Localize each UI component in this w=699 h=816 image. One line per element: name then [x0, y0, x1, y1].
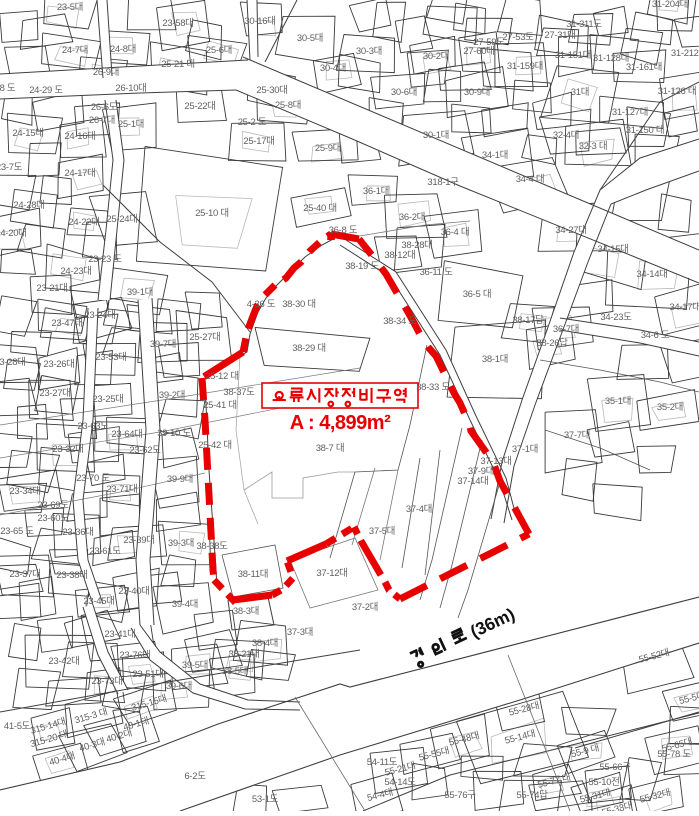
svg-text:25-41 대: 25-41 대: [203, 400, 237, 411]
svg-text:25-17대: 25-17대: [243, 136, 274, 147]
svg-text:23-53대: 23-53대: [95, 352, 126, 363]
svg-text:24-7대: 24-7대: [62, 45, 88, 56]
svg-text:31대: 31대: [571, 87, 589, 98]
svg-text:38-12대: 38-12대: [384, 250, 415, 261]
svg-text:30-2대: 30-2대: [423, 51, 449, 62]
svg-text:26-6도: 26-6도: [91, 102, 118, 113]
svg-text:34-17대: 34-17대: [669, 302, 699, 313]
svg-text:30-3대: 30-3대: [356, 46, 382, 57]
svg-text:23-32대: 23-32대: [52, 444, 83, 455]
svg-text:23-26대: 23-26대: [43, 359, 74, 370]
svg-text:23-37대: 23-37대: [9, 569, 40, 580]
svg-text:23-41대: 23-41대: [104, 629, 135, 640]
svg-text:37-2대: 37-2대: [352, 602, 378, 613]
svg-text:23-21대: 23-21대: [36, 283, 67, 294]
svg-text:39-10 도: 39-10 도: [157, 428, 191, 439]
svg-text:31-159대: 31-159대: [507, 61, 543, 72]
svg-text:55-78 도: 55-78 도: [657, 749, 691, 760]
svg-text:23-40대: 23-40대: [118, 586, 149, 597]
svg-text:25-8대: 25-8대: [275, 100, 301, 111]
svg-text:37-7대: 37-7대: [564, 430, 590, 441]
svg-text:24-16대: 24-16대: [64, 131, 95, 142]
svg-text:37-12대: 37-12대: [316, 568, 347, 579]
svg-text:23-61도: 23-61도: [89, 546, 121, 557]
svg-text:36-2대: 36-2대: [399, 212, 425, 223]
svg-text:26-9대: 26-9대: [93, 67, 119, 78]
svg-text:31-126 대: 31-126 대: [658, 86, 697, 97]
svg-text:38-11대: 38-11대: [238, 569, 269, 580]
svg-text:36-7대: 36-7대: [553, 324, 579, 335]
svg-text:23-36대: 23-36대: [62, 527, 93, 538]
svg-text:27-31대: 27-31대: [544, 30, 575, 41]
svg-text:31-212도: 31-212도: [671, 48, 699, 59]
svg-text:55-10전: 55-10전: [588, 777, 619, 788]
svg-text:23-69도: 23-69도: [37, 500, 69, 511]
svg-text:37-1대: 37-1대: [512, 444, 538, 455]
svg-text:38-21대: 38-21대: [228, 649, 259, 660]
svg-text:35-1대: 35-1대: [605, 396, 631, 407]
svg-text:23-23 도: 23-23 도: [88, 254, 122, 265]
svg-text:39-2대: 39-2대: [159, 390, 185, 401]
svg-text:34-6 도: 34-6 도: [641, 330, 670, 341]
svg-text:38-34 도: 38-34 도: [383, 316, 417, 327]
svg-text:37-14대: 37-14대: [457, 476, 488, 487]
svg-text:37-3대: 37-3대: [287, 627, 313, 638]
svg-text:34-27대: 34-27대: [555, 225, 586, 236]
svg-text:38-37도: 38-37도: [223, 387, 255, 398]
svg-text:37-4대: 37-4대: [406, 504, 432, 515]
svg-text:38-38도: 38-38도: [196, 541, 228, 552]
svg-text:26-10대: 26-10대: [115, 83, 146, 94]
svg-text:25-22대: 25-22대: [184, 101, 215, 112]
svg-text:23-73대: 23-73대: [91, 676, 122, 687]
svg-text:38-17답: 38-17답: [512, 314, 544, 326]
svg-text:34-15대: 34-15대: [597, 244, 628, 255]
svg-text:23-25대: 23-25대: [92, 394, 123, 405]
svg-text:30-6대: 30-6대: [391, 87, 417, 98]
svg-text:23-47대: 23-47대: [51, 318, 82, 329]
svg-text:24-15대: 24-15대: [12, 128, 43, 139]
svg-text:39-7대: 39-7대: [150, 339, 176, 350]
svg-text:38-5대: 38-5대: [222, 666, 248, 677]
svg-text:23-24대: 23-24대: [84, 310, 115, 321]
svg-text:38-29 대: 38-29 대: [292, 343, 326, 354]
svg-text:39-6대: 39-6대: [166, 681, 192, 692]
svg-text:23-71대: 23-71대: [106, 484, 137, 495]
svg-text:38-1대: 38-1대: [482, 354, 508, 365]
svg-text:35-2대: 35-2대: [657, 402, 683, 413]
svg-text:31-161대: 31-161대: [626, 62, 662, 73]
svg-text:30-16대: 30-16대: [244, 16, 275, 27]
svg-text:24-17대: 24-17대: [64, 168, 95, 179]
svg-text:24-22대: 24-22대: [68, 217, 99, 228]
svg-text:30-9대: 30-9대: [464, 87, 490, 98]
svg-text:24-29 도: 24-29 도: [29, 85, 63, 96]
svg-text:31-150 대: 31-150 대: [626, 125, 665, 136]
svg-text:54-14도: 54-14도: [384, 777, 416, 788]
svg-text:23-63도: 23-63도: [77, 421, 109, 432]
svg-text:25-27대: 25-27대: [189, 332, 220, 343]
svg-text:25-1대: 25-1대: [118, 119, 144, 130]
svg-text:25-42 대: 25-42 대: [198, 440, 232, 451]
svg-text:23-34대: 23-34대: [9, 486, 40, 497]
svg-text:39-4대: 39-4대: [172, 599, 198, 610]
svg-text:30-4대: 30-4대: [320, 63, 346, 74]
svg-text:23-70 도: 23-70 도: [76, 473, 110, 484]
svg-text:38-7 대: 38-7 대: [316, 443, 345, 454]
svg-text:39-3대: 39-3대: [168, 538, 194, 549]
svg-text:318-1구: 318-1구: [427, 177, 459, 188]
svg-text:25-9대: 25-9대: [315, 143, 341, 154]
svg-text:55-66구: 55-66구: [599, 762, 631, 773]
svg-text:34-1대: 34-1대: [482, 150, 508, 161]
svg-text:24-20대: 24-20대: [0, 228, 27, 239]
svg-text:23-27대: 23-27대: [39, 388, 70, 399]
svg-text:24-23대: 24-23대: [60, 266, 91, 277]
svg-text:38-19 도: 38-19 도: [345, 261, 379, 272]
svg-text:23-42대: 23-42대: [48, 656, 79, 667]
svg-text:39-5대: 39-5대: [182, 660, 208, 671]
svg-text:36-8 도: 36-8 도: [329, 225, 358, 236]
svg-text:36-11 도: 36-11 도: [420, 267, 453, 278]
svg-text:23-64대: 23-64대: [111, 429, 142, 440]
svg-text:23-28대: 23-28대: [0, 357, 26, 368]
svg-text:31-311도: 31-311도: [566, 19, 602, 30]
svg-text:23-45대: 23-45대: [83, 596, 114, 607]
svg-text:25-2 도: 25-2 도: [238, 117, 267, 128]
svg-text:30-1대: 30-1대: [423, 130, 449, 141]
svg-text:23-60도: 23-60도: [37, 513, 69, 524]
svg-text:23-62도: 23-62도: [129, 445, 161, 456]
svg-text:55-74답: 55-74답: [516, 789, 548, 801]
svg-text:23-5대: 23-5대: [57, 2, 83, 13]
svg-text:34-4 대: 34-4 대: [516, 174, 545, 185]
svg-text:25-21 대: 25-21 대: [161, 59, 195, 70]
svg-text:37-5대: 37-5대: [369, 526, 395, 537]
svg-text:38-3대: 38-3대: [233, 606, 259, 617]
svg-text:36-1대: 36-1대: [363, 186, 389, 197]
svg-text:23-76대: 23-76대: [119, 650, 150, 661]
svg-text:32-3 대: 32-3 대: [579, 141, 608, 152]
svg-text:4-36 도: 4-36 도: [247, 299, 276, 310]
svg-text:36-5 대: 36-5 대: [463, 289, 492, 300]
svg-text:39-9대: 39-9대: [167, 474, 193, 485]
svg-text:38-26답: 38-26답: [536, 337, 568, 349]
svg-text:24-8대: 24-8대: [110, 44, 136, 55]
svg-text:38-4대: 38-4대: [252, 638, 278, 649]
svg-text:32-4대: 32-4대: [553, 130, 579, 141]
svg-text:23-58대: 23-58대: [162, 18, 193, 29]
svg-text:23-51대: 23-51대: [132, 669, 163, 680]
svg-text:25-40 대: 25-40 대: [303, 203, 337, 214]
svg-text:55-76구: 55-76구: [444, 790, 476, 801]
svg-text:34-14대: 34-14대: [636, 269, 667, 280]
svg-text:6-2도: 6-2도: [184, 771, 206, 782]
svg-text:26-7대: 26-7대: [89, 115, 115, 126]
svg-text:38-33 도: 38-33 도: [416, 382, 450, 393]
svg-text:34-23도: 34-23도: [600, 312, 632, 323]
svg-text:25-10 대: 25-10 대: [195, 208, 229, 219]
svg-text:25-6대: 25-6대: [206, 45, 232, 56]
svg-text:30-5대: 30-5대: [297, 33, 323, 44]
svg-text:A : 4,899m²: A : 4,899m²: [290, 412, 391, 434]
svg-text:25-30대: 25-30대: [256, 85, 287, 96]
svg-text:25-24대: 25-24대: [106, 214, 137, 225]
svg-text:31-151대: 31-151대: [555, 50, 591, 61]
svg-text:27-53도: 27-53도: [502, 32, 534, 43]
svg-text:27-60대: 27-60대: [463, 46, 494, 57]
svg-text:41-5도: 41-5도: [4, 721, 31, 732]
svg-text:53-1도: 53-1도: [252, 794, 279, 805]
svg-text:23-65 도: 23-65 도: [0, 526, 34, 537]
svg-text:31-128대: 31-128대: [593, 53, 629, 64]
svg-text:23-7도: 23-7도: [0, 162, 23, 173]
svg-text:38-30 대: 38-30 대: [282, 299, 316, 310]
svg-text:39-1대: 39-1대: [127, 287, 153, 298]
svg-text:25-12 대: 25-12 대: [205, 371, 239, 382]
svg-text:58 도: 58 도: [0, 83, 16, 94]
svg-text:24-28대: 24-28대: [13, 200, 44, 211]
svg-text:23-39대: 23-39대: [123, 535, 154, 546]
svg-text:36-4 대: 36-4 대: [441, 227, 470, 238]
svg-text:31-204대: 31-204대: [652, 0, 688, 10]
svg-text:31-127대: 31-127대: [612, 107, 648, 118]
svg-text:23-38대: 23-38대: [56, 570, 87, 581]
